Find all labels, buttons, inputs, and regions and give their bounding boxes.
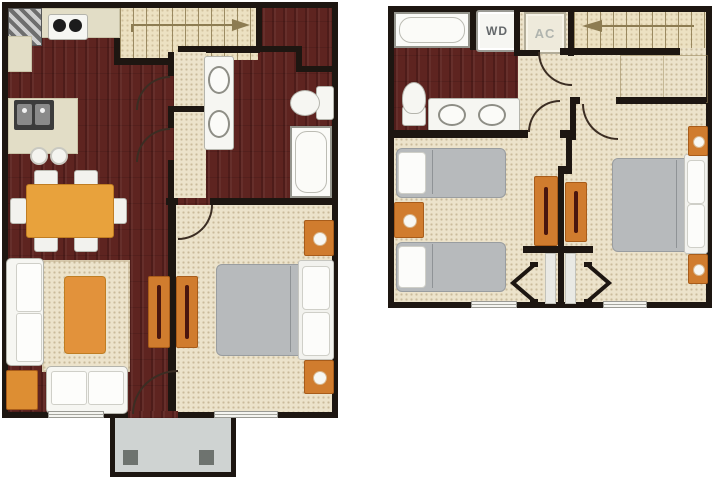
bar-stool bbox=[30, 147, 48, 165]
closet-sliding-doors bbox=[565, 182, 587, 242]
nightstand bbox=[688, 126, 708, 156]
closet-wall bbox=[296, 66, 332, 72]
washer-dryer-unit: WD bbox=[476, 10, 518, 52]
sink bbox=[208, 110, 230, 138]
porch-post bbox=[123, 450, 138, 465]
pillow bbox=[302, 266, 330, 310]
nightstand bbox=[394, 202, 424, 238]
toilet-bowl bbox=[402, 82, 426, 114]
pillow bbox=[687, 204, 705, 248]
bed-fold-line bbox=[432, 150, 433, 194]
second-floor-plan: WD AC bbox=[388, 6, 712, 308]
bedroom-window bbox=[603, 301, 647, 308]
bed-fold-line bbox=[290, 266, 291, 352]
bed-fold-line bbox=[676, 160, 677, 248]
hall-wall bbox=[168, 52, 174, 76]
bedroom-wall bbox=[616, 97, 706, 104]
first-floor-plan bbox=[2, 2, 338, 418]
front-porch bbox=[110, 418, 236, 477]
wall bbox=[256, 2, 262, 52]
kitchen-counter-side bbox=[8, 36, 32, 72]
bedroom-window bbox=[471, 301, 517, 308]
dining-table bbox=[26, 184, 114, 238]
media-console bbox=[148, 276, 170, 348]
divider-wall bbox=[558, 170, 564, 302]
bed-fold-line bbox=[432, 244, 433, 288]
coffee-table bbox=[64, 276, 106, 354]
stairs-up-arrow-icon bbox=[128, 16, 252, 34]
bathtub-basin bbox=[295, 131, 327, 193]
closet-sliding-doors bbox=[534, 176, 558, 246]
bedroom-wall bbox=[210, 198, 332, 205]
closet-wall bbox=[514, 50, 540, 56]
nightstand bbox=[688, 254, 708, 284]
bathroom-wall bbox=[394, 130, 528, 138]
closet-return bbox=[565, 253, 576, 304]
pillow bbox=[302, 312, 330, 356]
living-window bbox=[48, 411, 104, 418]
hall-wall bbox=[168, 106, 208, 112]
bathtub bbox=[290, 126, 332, 198]
pillow bbox=[398, 246, 426, 288]
bar-stool bbox=[50, 147, 68, 165]
island-double-sink bbox=[14, 100, 54, 130]
bathtub-basin bbox=[399, 17, 465, 43]
stair-railing-wall bbox=[560, 48, 680, 55]
floor-plan-image: WD AC bbox=[0, 0, 720, 480]
stairs-down-arrow-icon bbox=[580, 18, 702, 34]
pillow bbox=[398, 152, 426, 194]
sofa bbox=[6, 258, 44, 366]
sink bbox=[478, 104, 506, 126]
ottoman bbox=[6, 370, 38, 410]
stair-return-outline bbox=[620, 55, 708, 103]
range-stove bbox=[48, 14, 88, 40]
open-door-icon bbox=[584, 262, 614, 304]
wall bbox=[514, 6, 520, 52]
pillow bbox=[687, 160, 705, 204]
bedroom-window bbox=[214, 411, 278, 418]
queen-bed-mattress bbox=[612, 158, 690, 252]
closet-return bbox=[545, 253, 556, 304]
nightstand bbox=[304, 220, 334, 256]
bedroom-wall bbox=[166, 198, 178, 205]
toilet-bowl bbox=[290, 90, 320, 116]
sink bbox=[208, 66, 230, 94]
loveseat bbox=[46, 366, 128, 414]
bathtub bbox=[394, 12, 470, 48]
porch-post bbox=[199, 450, 214, 465]
sink bbox=[438, 104, 466, 126]
hallway-floor bbox=[174, 52, 206, 198]
nightstand bbox=[304, 360, 334, 394]
open-door-icon bbox=[508, 262, 538, 304]
dining-chair bbox=[10, 198, 27, 224]
bedroom-dresser bbox=[176, 276, 198, 348]
closet-front-wall bbox=[523, 246, 593, 253]
